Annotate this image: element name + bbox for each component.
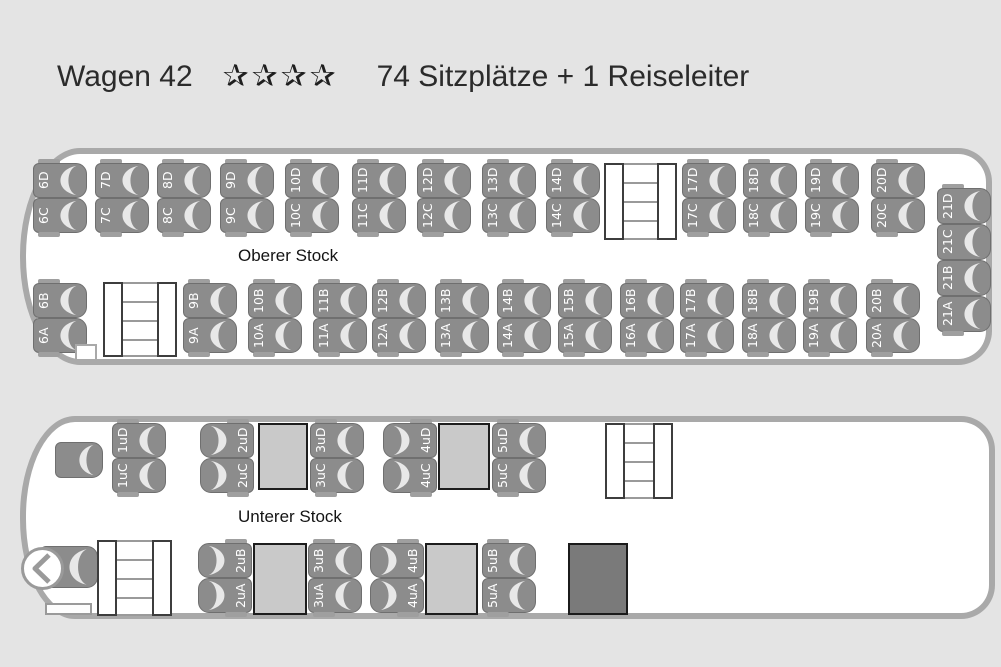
seat-19B[interactable]: 19B xyxy=(803,283,857,318)
seat-label: 12B xyxy=(375,284,391,317)
seat-label: 13A xyxy=(438,319,454,352)
stair-rail xyxy=(157,282,177,357)
seat-1uC[interactable]: 1uC xyxy=(112,458,166,493)
seat-label: 13B xyxy=(438,284,454,317)
seat-pair: 8D8C xyxy=(157,163,211,233)
seat-label: 3uA xyxy=(311,579,327,612)
seat-8C[interactable]: 8C xyxy=(157,198,211,233)
seat-14C[interactable]: 14C xyxy=(546,198,600,233)
seat-10A[interactable]: 10A xyxy=(248,318,302,353)
seat-pair: 2uB2uA xyxy=(198,543,252,613)
seat-10C[interactable]: 10C xyxy=(285,198,339,233)
table xyxy=(425,543,478,615)
seat-19C[interactable]: 19C xyxy=(805,198,859,233)
seat-label: 19D xyxy=(808,164,824,197)
seat-5uD[interactable]: 5uD xyxy=(492,423,546,458)
seat-11B[interactable]: 11B xyxy=(313,283,367,318)
seat-label: 21A xyxy=(940,297,956,331)
seat-pair: 19D19C xyxy=(805,163,859,233)
seat-label: 18C xyxy=(746,199,762,232)
seat-label: 2uD xyxy=(235,424,251,457)
seat-11D[interactable]: 11D xyxy=(352,163,406,198)
seat-label: 14C xyxy=(549,199,565,232)
seat-3uC[interactable]: 3uC xyxy=(310,458,364,493)
seat-11A[interactable]: 11A xyxy=(313,318,367,353)
seat-18D[interactable]: 18D xyxy=(743,163,797,198)
seat-21D[interactable]: 21D xyxy=(937,188,991,224)
seat-1uD[interactable]: 1uD xyxy=(112,423,166,458)
table xyxy=(253,543,307,615)
seat-label: 18D xyxy=(746,164,762,197)
seat-7D[interactable]: 7D xyxy=(95,163,149,198)
seat-12C[interactable]: 12C xyxy=(417,198,471,233)
seat-label: 9C xyxy=(223,199,239,232)
seat-label: 4uC xyxy=(418,459,434,492)
seat-13A[interactable]: 13A xyxy=(435,318,489,353)
seat-label: 8C xyxy=(160,199,176,232)
seat-pair: 17B17A xyxy=(680,283,734,353)
seat-pair: 7D7C xyxy=(95,163,149,233)
seat-label: 13C xyxy=(485,199,501,232)
seat-6D[interactable]: 6D xyxy=(33,163,87,198)
seat-9B[interactable]: 9B xyxy=(183,283,237,318)
seat-16B[interactable]: 16B xyxy=(620,283,674,318)
seat-label: 20B xyxy=(869,284,885,317)
seat-pair: 12B12A xyxy=(372,283,426,353)
seat-10D[interactable]: 10D xyxy=(285,163,339,198)
steering-wheel-icon xyxy=(20,546,65,591)
seat-label: 21B xyxy=(940,261,956,295)
seat-5uB[interactable]: 5uB xyxy=(482,543,536,578)
seat-pair: 1uD1uC xyxy=(112,423,166,493)
seat-4uB[interactable]: 4uB xyxy=(370,543,424,578)
seat-13B[interactable]: 13B xyxy=(435,283,489,318)
seat-pair: 20D20C xyxy=(871,163,925,233)
seat-pair: 9D9C xyxy=(220,163,274,233)
seat-21A[interactable]: 21A xyxy=(937,296,991,332)
capacity-text: 74 Sitzplätze + 1 Reiseleiter xyxy=(377,60,750,94)
seat-label: 7C xyxy=(98,199,114,232)
seat-pair: 5uB5uA xyxy=(482,543,536,613)
seat-label: 5uC xyxy=(495,459,511,492)
seat-12B[interactable]: 12B xyxy=(372,283,426,318)
seat-pair: 4uD4uC xyxy=(383,423,437,493)
seat-20B[interactable]: 20B xyxy=(866,283,920,318)
seat-19A[interactable]: 19A xyxy=(803,318,857,353)
seat-label: 11D xyxy=(355,164,371,197)
bus-seatmap-page: Wagen 42 ✰✰✰✰ 74 Sitzplätze + 1 Reiselei… xyxy=(0,0,1001,667)
stair-steps xyxy=(624,163,657,240)
seat-pair: 2uD2uC xyxy=(200,423,254,493)
tour-guide-seat[interactable] xyxy=(55,442,103,478)
stair-rail xyxy=(97,540,117,616)
seat-2uA[interactable]: 2uA xyxy=(198,578,252,613)
seat-label: 3uD xyxy=(313,424,329,457)
seat-21B[interactable]: 21B xyxy=(937,260,991,296)
seat-pair: 13D13C xyxy=(482,163,536,233)
seat-label: 9B xyxy=(186,284,202,317)
seat-pair: 14D14C xyxy=(546,163,600,233)
seat-14D[interactable]: 14D xyxy=(546,163,600,198)
seat-label: 17A xyxy=(683,319,699,352)
seat-17C[interactable]: 17C xyxy=(682,198,736,233)
stair-rail xyxy=(657,163,677,240)
seat-pair: 3uD3uC xyxy=(310,423,364,493)
seat-label: 16A xyxy=(623,319,639,352)
seat-pair: 19B19A xyxy=(803,283,857,353)
seat-9A[interactable]: 9A xyxy=(183,318,237,353)
steering-wheel-icon xyxy=(20,546,65,591)
seat-label: 18B xyxy=(745,284,761,317)
seat-3uD[interactable]: 3uD xyxy=(310,423,364,458)
upper-deck-outline: Oberer Stock 6D6C7D7C8D8C9D9C10D10C11D11… xyxy=(20,148,992,365)
stair-steps xyxy=(123,282,157,357)
seat-18B[interactable]: 18B xyxy=(742,283,796,318)
upper-deck-label: Oberer Stock xyxy=(238,246,338,266)
seat-label: 18A xyxy=(745,319,761,352)
seat-label: 21D xyxy=(940,189,956,223)
seat-pair: 10B10A xyxy=(248,283,302,353)
seat-label: 4uB xyxy=(405,544,421,577)
seat-pair: 3uB3uA xyxy=(308,543,362,613)
seat-label: 1uD xyxy=(115,424,131,457)
seat-pair: 6D6C xyxy=(33,163,87,233)
seat-label: 7D xyxy=(98,164,114,197)
seat-label: 4uD xyxy=(418,424,434,457)
stair-rail xyxy=(604,163,624,240)
seat-2uC[interactable]: 2uC xyxy=(200,458,254,493)
stair-rail xyxy=(605,423,625,499)
seat-4uA[interactable]: 4uA xyxy=(370,578,424,613)
seat-pair: 4uB4uA xyxy=(370,543,424,613)
seat-17B[interactable]: 17B xyxy=(680,283,734,318)
seat-12D[interactable]: 12D xyxy=(417,163,471,198)
seat-8D[interactable]: 8D xyxy=(157,163,211,198)
seat-6B[interactable]: 6B xyxy=(33,283,87,318)
dashboard xyxy=(45,603,92,615)
seat-label: 20C xyxy=(874,199,890,232)
seat-pair: 9B9A xyxy=(183,283,237,353)
seat-pair: 11D11C xyxy=(352,163,406,233)
seat-pair: 12D12C xyxy=(417,163,471,233)
seat-label: 13D xyxy=(485,164,501,197)
seat-17D[interactable]: 17D xyxy=(682,163,736,198)
seat-19D[interactable]: 19D xyxy=(805,163,859,198)
seat-label: 5uB xyxy=(485,544,501,577)
seat-label: 14B xyxy=(500,284,516,317)
seat-12A[interactable]: 12A xyxy=(372,318,426,353)
seat-cushion-icon xyxy=(56,443,102,477)
seat-17A[interactable]: 17A xyxy=(680,318,734,353)
seat-label: 14D xyxy=(549,164,565,197)
seat-9D[interactable]: 9D xyxy=(220,163,274,198)
front-notch xyxy=(75,344,97,359)
seat-label: 19C xyxy=(808,199,824,232)
seat-label: 9D xyxy=(223,164,239,197)
seat-11C[interactable]: 11C xyxy=(352,198,406,233)
seat-label: 20A xyxy=(869,319,885,352)
seat-label: 5uD xyxy=(495,424,511,457)
seat-label: 6B xyxy=(36,284,52,317)
seat-18C[interactable]: 18C xyxy=(743,198,797,233)
seat-label: 11B xyxy=(316,284,332,317)
seat-label: 2uB xyxy=(233,544,249,577)
seat-4uD[interactable]: 4uD xyxy=(383,423,437,458)
seat-pair: 6B6A xyxy=(33,283,87,353)
seat-pair: 15B15A xyxy=(558,283,612,353)
seat-label: 20D xyxy=(874,164,890,197)
seat-10B[interactable]: 10B xyxy=(248,283,302,318)
table xyxy=(438,423,490,490)
seat-label: 17D xyxy=(685,164,701,197)
seat-pair: 20B20A xyxy=(866,283,920,353)
bus-name: Wagen 42 xyxy=(57,60,193,94)
seat-pair: 17D17C xyxy=(682,163,736,233)
seat-label: 6A xyxy=(36,319,52,352)
lower-deck-outline: Unterer Stock 1uD1uC2uD2uC3uD3uC4uD4uC5u… xyxy=(20,416,995,619)
seat-pair: 11B11A xyxy=(313,283,367,353)
seat-pair: 18B18A xyxy=(742,283,796,353)
seat-label: 5uA xyxy=(485,579,501,612)
seat-label: 10D xyxy=(288,164,304,197)
seat-15A[interactable]: 15A xyxy=(558,318,612,353)
seat-label: 3uB xyxy=(311,544,327,577)
seat-pair: 18D18C xyxy=(743,163,797,233)
wc-compartment xyxy=(568,543,628,615)
seat-3uA[interactable]: 3uA xyxy=(308,578,362,613)
seat-label: 10B xyxy=(251,284,267,317)
seat-pair: 13B13A xyxy=(435,283,489,353)
seat-label: 2uC xyxy=(235,459,251,492)
seat-label: 3uC xyxy=(313,459,329,492)
seat-label: 12A xyxy=(375,319,391,352)
seat-label: 2uA xyxy=(233,579,249,612)
seat-label: 11C xyxy=(355,199,371,232)
seat-label: 15A xyxy=(561,319,577,352)
seat-pair: 14B14A xyxy=(497,283,551,353)
stair-steps xyxy=(625,423,653,499)
tour-guide-seat[interactable] xyxy=(55,442,103,478)
staircase-rear xyxy=(605,423,673,499)
seat-20C[interactable]: 20C xyxy=(871,198,925,233)
table xyxy=(258,423,308,490)
seat-18A[interactable]: 18A xyxy=(742,318,796,353)
seat-pair: 5uD5uC xyxy=(492,423,546,493)
page-title: Wagen 42 ✰✰✰✰ 74 Sitzplätze + 1 Reiselei… xyxy=(57,58,749,94)
seat-pair: 16B16A xyxy=(620,283,674,353)
seat-20D[interactable]: 20D xyxy=(871,163,925,198)
seat-13C[interactable]: 13C xyxy=(482,198,536,233)
seat-label: 15B xyxy=(561,284,577,317)
seat-label: 12D xyxy=(420,164,436,197)
seat-label: 8D xyxy=(160,164,176,197)
staircase-front xyxy=(97,540,172,616)
seat-5uA[interactable]: 5uA xyxy=(482,578,536,613)
seat-label: 17C xyxy=(685,199,701,232)
seat-label: 14A xyxy=(500,319,516,352)
seat-label: 6D xyxy=(36,164,52,197)
lower-deck-label: Unterer Stock xyxy=(238,507,342,527)
staircase-front xyxy=(103,282,177,357)
seat-14A[interactable]: 14A xyxy=(497,318,551,353)
seat-label: 9A xyxy=(186,319,202,352)
seat-9C[interactable]: 9C xyxy=(220,198,274,233)
seat-14B[interactable]: 14B xyxy=(497,283,551,318)
seat-label: 16B xyxy=(623,284,639,317)
stair-rail xyxy=(152,540,172,616)
seat-16A[interactable]: 16A xyxy=(620,318,674,353)
stair-rail xyxy=(653,423,673,499)
seat-6C[interactable]: 6C xyxy=(33,198,87,233)
seat-13D[interactable]: 13D xyxy=(482,163,536,198)
stair-steps xyxy=(117,540,152,616)
seat-label: 12C xyxy=(420,199,436,232)
seat-label: 11A xyxy=(316,319,332,352)
seat-label: 10A xyxy=(251,319,267,352)
seat-3uB[interactable]: 3uB xyxy=(308,543,362,578)
seat-2uD[interactable]: 2uD xyxy=(200,423,254,458)
seat-label: 1uC xyxy=(115,459,131,492)
seat-2uB[interactable]: 2uB xyxy=(198,543,252,578)
seat-7C[interactable]: 7C xyxy=(95,198,149,233)
seat-4uC[interactable]: 4uC xyxy=(383,458,437,493)
seat-21C[interactable]: 21C xyxy=(937,224,991,260)
seat-label: 19A xyxy=(806,319,822,352)
staircase-rear xyxy=(604,163,677,240)
seat-label: 17B xyxy=(683,284,699,317)
seat-pair: 10D10C xyxy=(285,163,339,233)
seat-label: 6C xyxy=(36,199,52,232)
seat-pair: 21D21C21B21A xyxy=(937,188,991,332)
stair-rail xyxy=(103,282,123,357)
seat-label: 19B xyxy=(806,284,822,317)
seat-5uC[interactable]: 5uC xyxy=(492,458,546,493)
seat-20A[interactable]: 20A xyxy=(866,318,920,353)
star-rating-icon: ✰✰✰✰ xyxy=(223,58,339,94)
seat-label: 21C xyxy=(940,225,956,259)
seat-15B[interactable]: 15B xyxy=(558,283,612,318)
seat-label: 10C xyxy=(288,199,304,232)
seat-label: 4uA xyxy=(405,579,421,612)
